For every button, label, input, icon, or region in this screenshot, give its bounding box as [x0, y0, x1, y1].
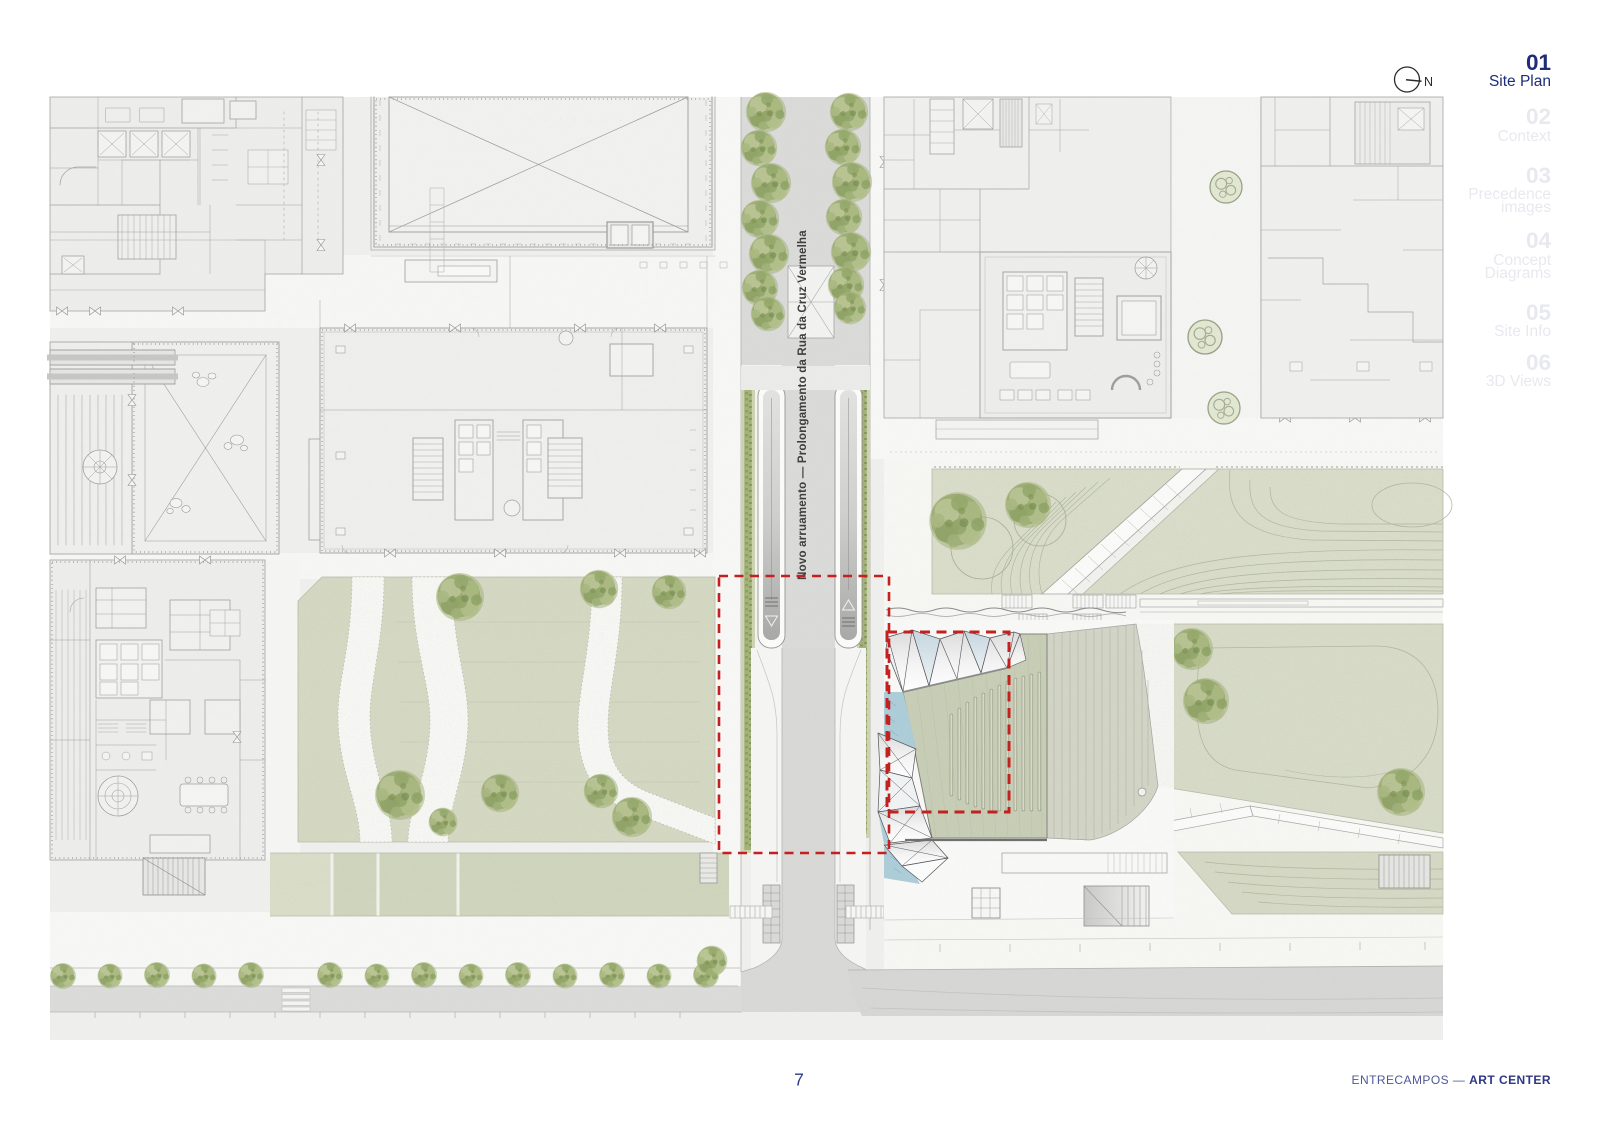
svg-text:03: 03 [1526, 163, 1551, 188]
svg-text:Context: Context [1498, 128, 1552, 145]
svg-text:05: 05 [1526, 300, 1551, 325]
svg-text:Diagrams: Diagrams [1485, 265, 1552, 282]
svg-text:06: 06 [1526, 350, 1551, 375]
svg-text:3D Views: 3D Views [1486, 373, 1551, 390]
svg-text:ENTRECAMPOS — ART CENTER: ENTRECAMPOS — ART CENTER [1352, 1073, 1552, 1087]
svg-text:7: 7 [794, 1070, 804, 1090]
svg-text:Site Info: Site Info [1494, 323, 1551, 340]
svg-text:01: 01 [1526, 50, 1551, 75]
svg-text:images: images [1501, 199, 1551, 216]
svg-text:N: N [1424, 75, 1433, 89]
svg-text:02: 02 [1526, 104, 1551, 129]
svg-text:Site Plan: Site Plan [1489, 73, 1551, 90]
svg-text:04: 04 [1526, 228, 1552, 253]
